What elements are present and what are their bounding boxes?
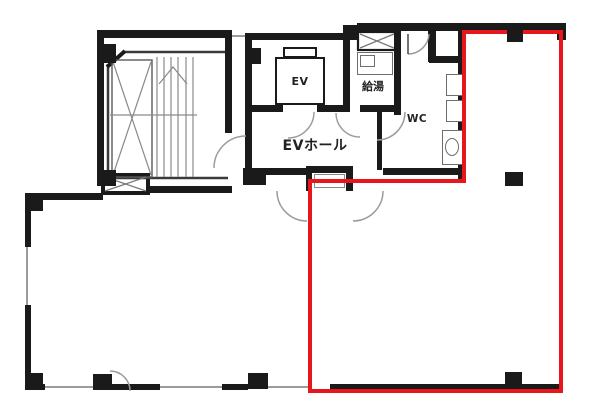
room-label-elevator: EV <box>275 57 325 105</box>
door-swing-arc <box>110 371 130 391</box>
leased-boundary-right <box>559 30 563 393</box>
urinal-fixture <box>446 100 463 122</box>
column-marker <box>505 172 523 186</box>
door-swing-arc <box>408 34 429 54</box>
column-marker <box>245 48 261 64</box>
column-marker <box>98 44 116 63</box>
stair-direction-arrow <box>159 67 187 84</box>
column-marker <box>25 193 43 211</box>
column-marker <box>93 374 112 390</box>
column-marker <box>248 373 268 389</box>
leased-boundary-left <box>308 179 312 393</box>
room-label-toilet: WC <box>400 110 434 128</box>
leased-boundary-mid <box>308 179 466 183</box>
column-marker <box>243 168 266 185</box>
column-marker <box>505 372 522 388</box>
door-swing-arc <box>214 136 246 168</box>
column-marker <box>97 170 116 186</box>
room-label-elevator-hall: EVホール <box>252 134 378 156</box>
column-marker <box>507 27 523 42</box>
floor-plan: EV 給湯 WC EVホール <box>0 0 600 420</box>
column-marker <box>25 373 43 390</box>
leased-boundary-wc-side <box>462 30 466 183</box>
leased-boundary-bottom <box>308 389 563 393</box>
room-label-hot-water: 給湯 <box>350 76 396 96</box>
sink-basin <box>360 55 375 67</box>
toilet-bowl <box>445 138 459 156</box>
urinal-fixture <box>446 74 463 96</box>
door-swing-arc <box>277 191 307 221</box>
staircase-detail <box>107 51 228 178</box>
door-swing-arc <box>353 191 383 221</box>
